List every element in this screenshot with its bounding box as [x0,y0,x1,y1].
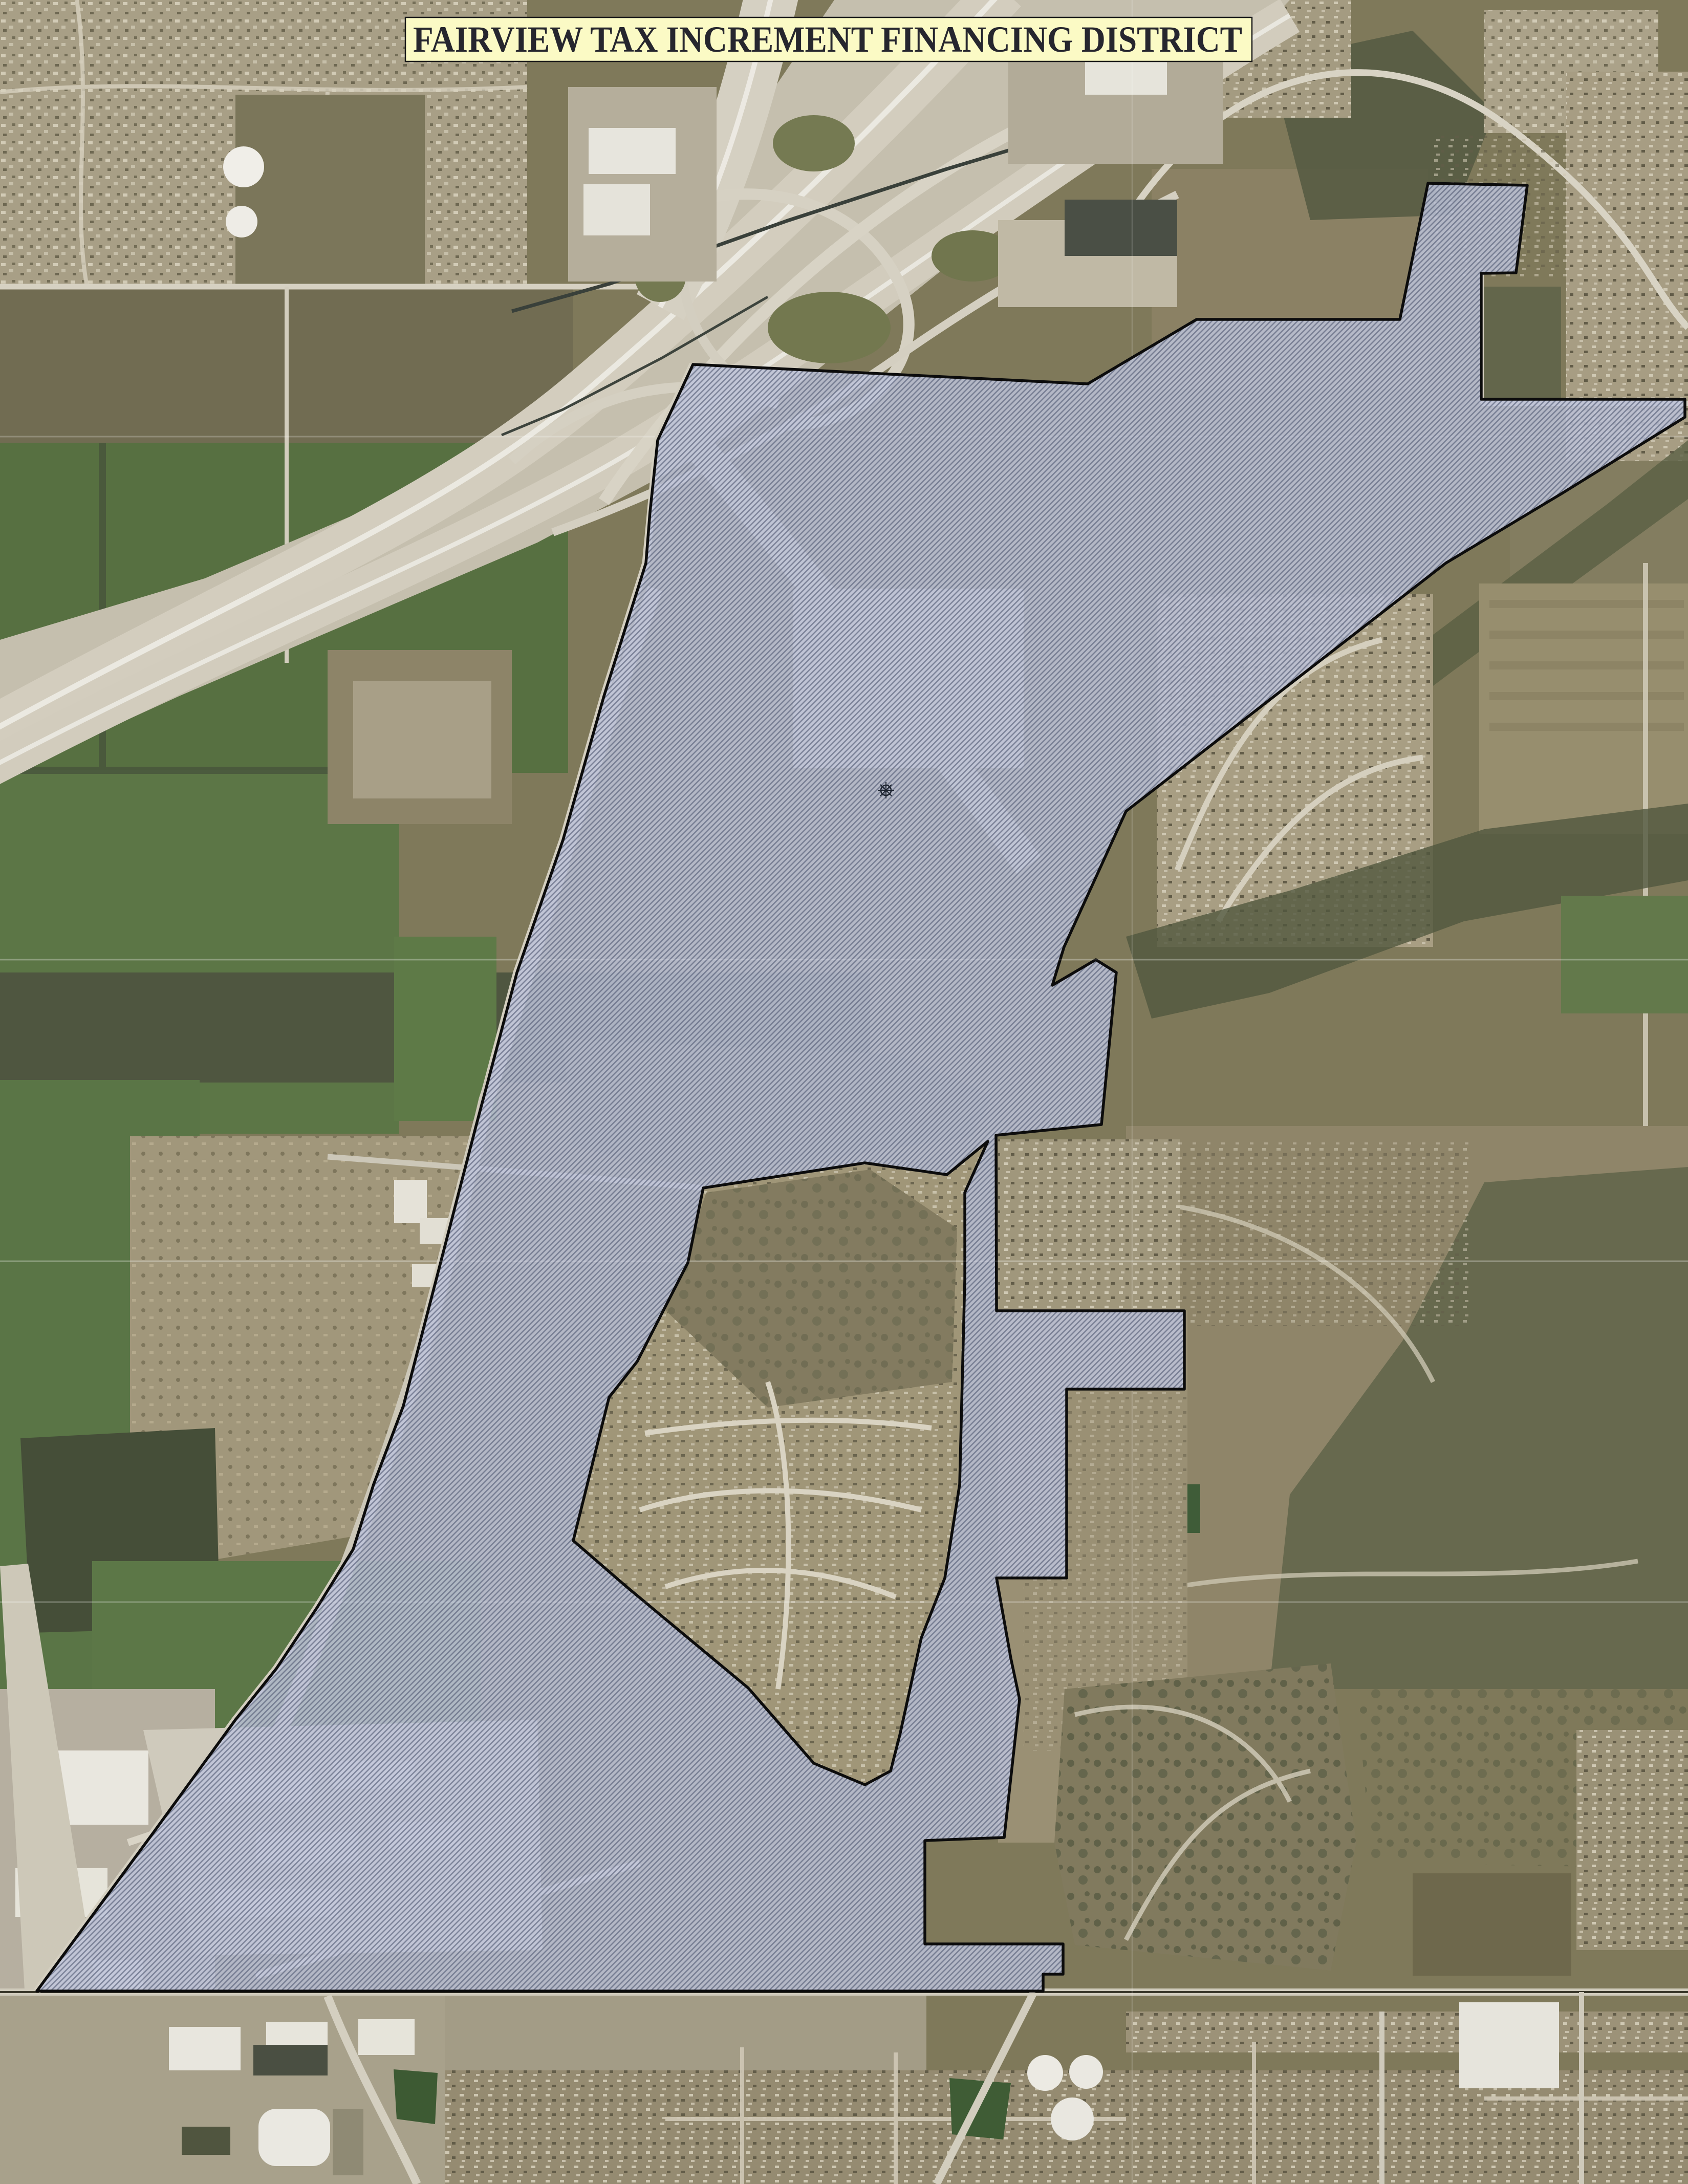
svg-text:FAIRVIEW TAX INCREMENT FINANCI: FAIRVIEW TAX INCREMENT FINANCING DISTRIC… [413,19,1242,60]
